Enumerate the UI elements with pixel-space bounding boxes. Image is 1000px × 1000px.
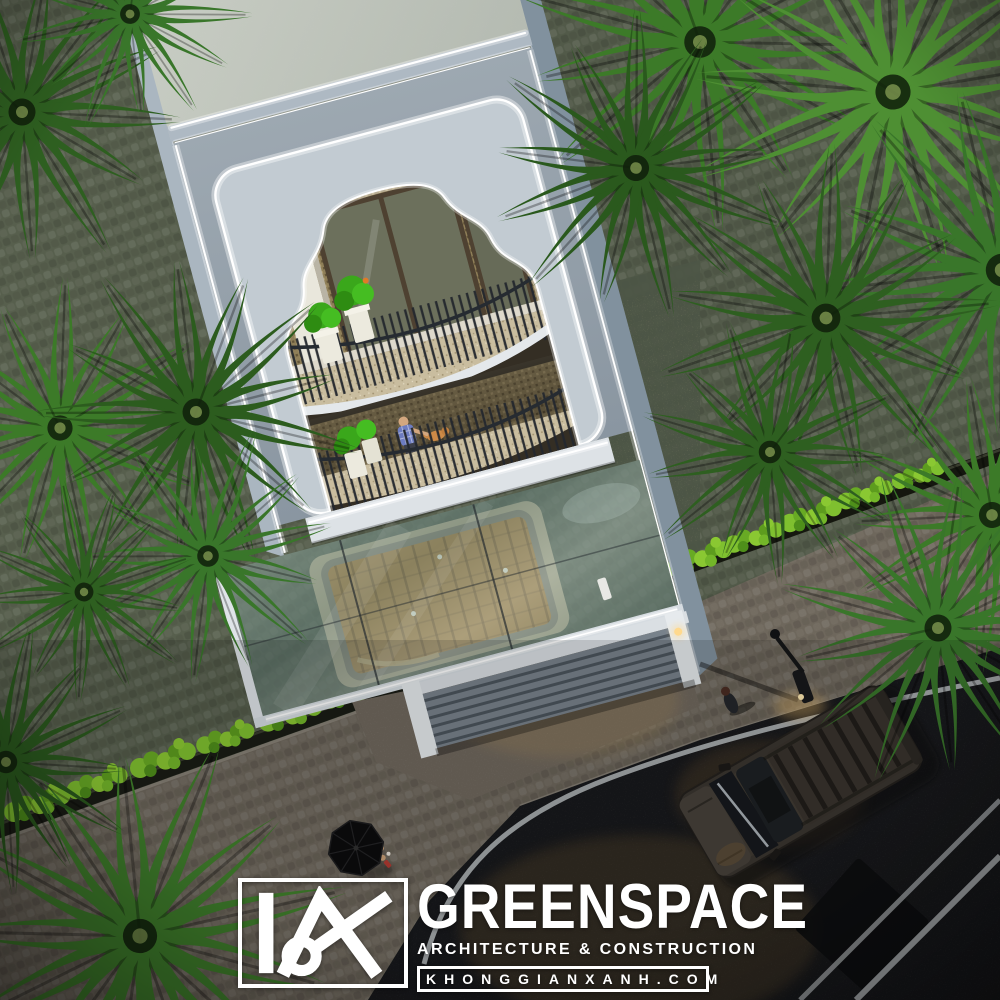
logo-text-block: GREENSPACE ARCHITECTURE & CONSTRUCTION K…: [417, 878, 808, 992]
watermark-logo: GREENSPACE ARCHITECTURE & CONSTRUCTION K…: [238, 878, 808, 992]
brand-name: GREENSPACE: [417, 878, 808, 936]
brand-tagline: ARCHITECTURE & CONSTRUCTION: [417, 941, 808, 959]
architectural-render: GREENSPACE ARCHITECTURE & CONSTRUCTION K…: [0, 0, 1000, 1000]
brand-website: KHONGGIANXANH.COM: [417, 966, 709, 992]
kgx-monogram-icon: [250, 886, 396, 980]
scene-canvas: [0, 0, 1000, 1000]
logo-monogram-box: [238, 878, 408, 988]
